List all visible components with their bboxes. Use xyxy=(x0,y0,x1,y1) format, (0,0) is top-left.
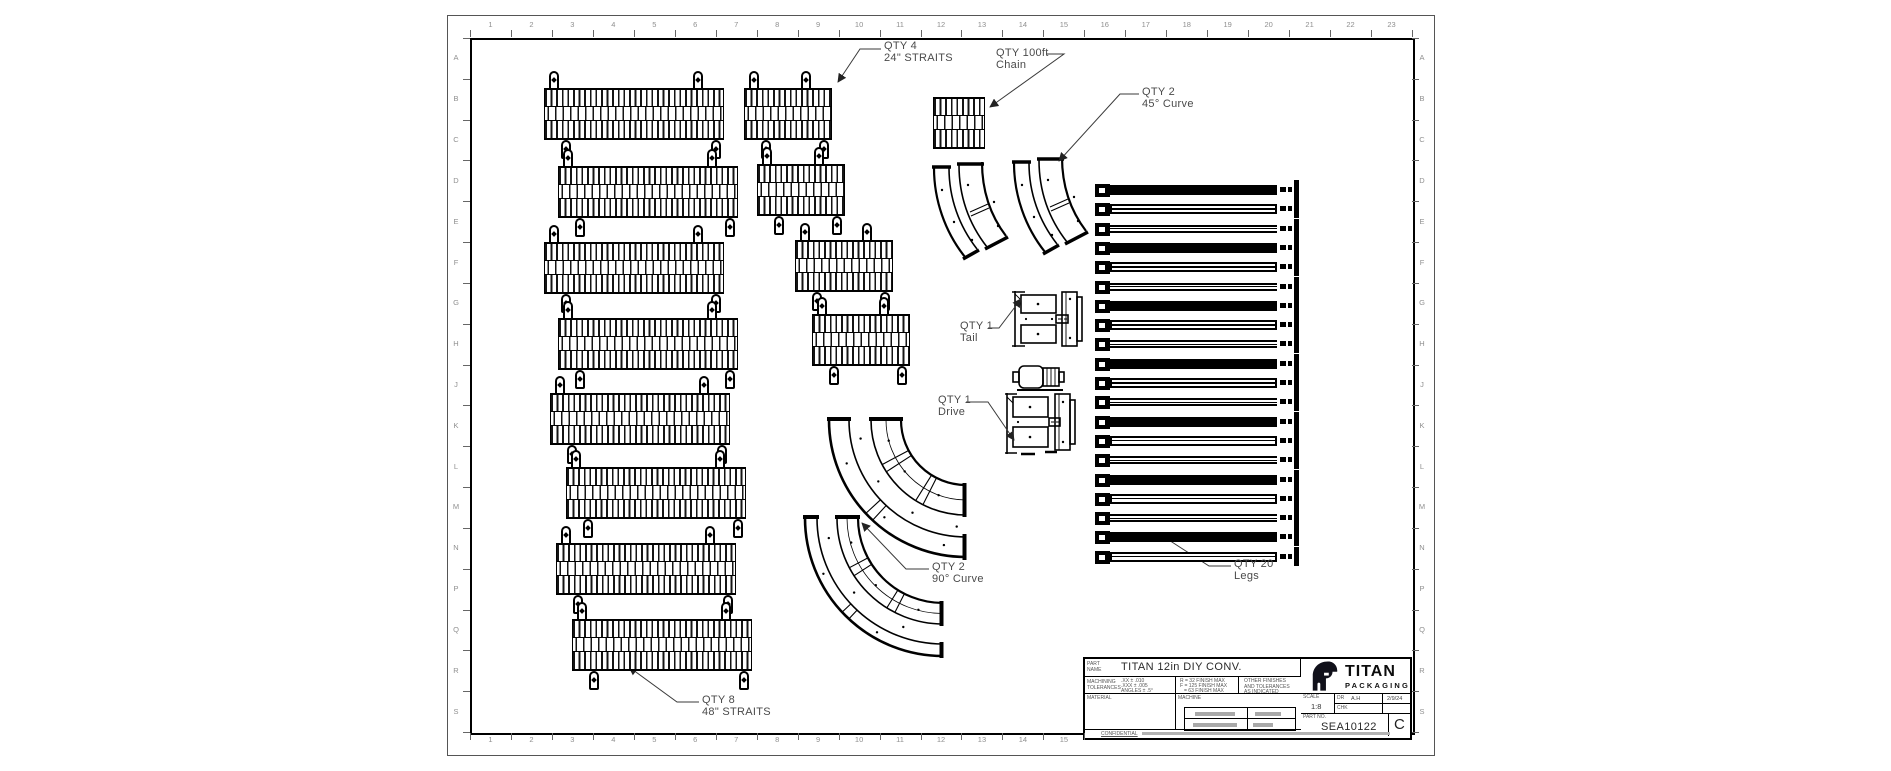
leg xyxy=(1095,392,1299,412)
material-cell: MATERIAL xyxy=(1085,694,1176,730)
leg-end-bracket xyxy=(1294,334,1299,353)
ruler-number: 13 xyxy=(962,21,1002,29)
leg-foot xyxy=(1095,281,1110,294)
leg-dash xyxy=(1280,419,1286,424)
leg-end-bracket xyxy=(1294,489,1299,508)
label-line1: QTY 1 xyxy=(960,321,993,333)
straight-48in xyxy=(550,393,730,445)
mount-lug xyxy=(721,602,731,621)
ruler-number: 5 xyxy=(634,21,674,29)
leg xyxy=(1095,219,1299,239)
ruler-number: 6 xyxy=(675,21,715,29)
leg-foot xyxy=(1095,454,1110,467)
leg-end-bracket xyxy=(1294,392,1299,411)
mount-lug xyxy=(814,147,824,166)
ruler-number: 12 xyxy=(921,736,961,744)
ruler-number: 3 xyxy=(552,21,592,29)
label-45-curve: QTY 245° Curve xyxy=(1142,87,1194,110)
ruler-letter: C xyxy=(1415,136,1429,144)
drawing-sheet: PART NAME TITAN 12in DIY CONV. MACHINING… xyxy=(0,0,1891,771)
leader-line xyxy=(862,523,929,569)
scale-label: SCALE xyxy=(1303,695,1319,701)
ruler-tick xyxy=(511,30,512,37)
leg-end-bracket xyxy=(1294,277,1299,296)
leader-line xyxy=(838,49,881,82)
mount-lug xyxy=(583,519,593,538)
ruler-number: 8 xyxy=(757,21,797,29)
leg-bar xyxy=(1110,359,1277,369)
leg xyxy=(1095,199,1299,219)
mount-lug xyxy=(879,297,889,316)
spartan-helmet-icon xyxy=(1309,661,1341,692)
leg-bar xyxy=(1110,320,1277,330)
ruler-tick xyxy=(463,569,470,570)
leg-bar xyxy=(1110,475,1277,485)
label-line1: QTY 4 xyxy=(884,41,953,53)
ruler-tick xyxy=(463,446,470,447)
mount-lug xyxy=(693,71,703,90)
ruler-tick xyxy=(798,733,799,740)
straight-48in xyxy=(544,242,724,294)
leg-bar xyxy=(1110,398,1277,406)
ruler-tick xyxy=(463,528,470,529)
ruler-number: 6 xyxy=(675,736,715,744)
straight-24in xyxy=(795,240,893,292)
label-line1: QTY 20 xyxy=(1234,559,1274,571)
ruler-letter: E xyxy=(449,218,463,226)
leg-dash xyxy=(1288,341,1292,346)
leg-bar xyxy=(1110,494,1277,504)
ruler-letter: F xyxy=(449,259,463,267)
ruler-tick xyxy=(1207,30,1208,37)
mount-lug xyxy=(762,147,772,166)
ruler-letter: H xyxy=(449,340,463,348)
ruler-tick xyxy=(1412,120,1419,121)
ruler-number: 14 xyxy=(1003,736,1043,744)
leg-end-bracket xyxy=(1294,199,1299,218)
chain-bed-band xyxy=(551,411,729,426)
label-line2: Tail xyxy=(960,333,993,345)
ruler-tick xyxy=(1248,30,1249,37)
straight-24in xyxy=(812,314,910,366)
label-line1: QTY 1 xyxy=(938,395,971,407)
ruler-number: 12 xyxy=(921,21,961,29)
leg xyxy=(1095,373,1299,393)
leg-dash xyxy=(1288,284,1292,289)
leg-dash xyxy=(1280,477,1286,482)
leg-foot xyxy=(1095,474,1110,487)
leg xyxy=(1095,489,1299,509)
ruler-letter: N xyxy=(449,544,463,552)
ruler-tick xyxy=(470,733,471,740)
mount-lug xyxy=(707,301,717,320)
mount-lug xyxy=(707,149,717,168)
ruler-letter: N xyxy=(1415,544,1429,552)
straight-48in xyxy=(572,619,752,671)
ruler-number: 8 xyxy=(757,736,797,744)
ruler-tick xyxy=(463,732,470,733)
leg xyxy=(1095,238,1299,258)
label-line2: 45° Curve xyxy=(1142,99,1194,111)
mount-lug xyxy=(725,370,735,389)
ruler-tick xyxy=(463,324,470,325)
ruler-number: 14 xyxy=(1003,21,1043,29)
ruler-letter: D xyxy=(1415,177,1429,185)
leg-foot xyxy=(1095,531,1110,544)
leg-bar xyxy=(1110,340,1277,348)
mount-lug xyxy=(549,225,559,244)
leg-foot xyxy=(1095,493,1110,506)
leg-bar xyxy=(1110,283,1277,291)
label-48in-straits: QTY 848" STRAITS xyxy=(702,695,771,718)
logo-cell: TITAN PACKAGING xyxy=(1301,659,1412,694)
ruler-tick xyxy=(1412,732,1419,733)
label-drive: QTY 1Drive xyxy=(938,395,971,418)
leg-dash xyxy=(1280,399,1286,404)
leg xyxy=(1095,257,1299,277)
mount-lug xyxy=(575,370,585,389)
ruler-tick xyxy=(463,283,470,284)
drawn-cell: DR A.H xyxy=(1335,694,1383,704)
mount-lug xyxy=(549,71,559,90)
ruler-number: 2 xyxy=(511,21,551,29)
label-tail: QTY 1Tail xyxy=(960,321,993,344)
leg-bar xyxy=(1110,301,1277,311)
ruler-letter: H xyxy=(1415,340,1429,348)
title-block: PART NAME TITAN 12in DIY CONV. MACHINING… xyxy=(1083,657,1412,740)
ruler-tick xyxy=(463,120,470,121)
leg-bar xyxy=(1110,514,1277,522)
mount-lug xyxy=(801,71,811,90)
signature-bar xyxy=(1142,732,1390,735)
leg xyxy=(1095,180,1299,200)
mount-lug xyxy=(733,519,743,538)
mount-lug xyxy=(699,376,709,395)
leg-foot xyxy=(1095,377,1110,390)
leg-dash xyxy=(1288,496,1292,501)
ruler-tick xyxy=(1412,79,1419,80)
chain-bed-band xyxy=(545,260,723,275)
ruler-number: 11 xyxy=(880,736,920,744)
ruler-tick xyxy=(1412,283,1419,284)
leg-bar xyxy=(1110,204,1277,214)
mount-lug xyxy=(832,216,842,235)
ruler-tick xyxy=(716,733,717,740)
label-line1: QTY 100ft xyxy=(996,48,1049,60)
ruler-tick xyxy=(716,30,717,37)
ruler-tick xyxy=(463,650,470,651)
ruler-tick xyxy=(1412,242,1419,243)
leg-dash xyxy=(1288,399,1292,404)
ruler-tick xyxy=(511,733,512,740)
label-line2: 24" STRAITS xyxy=(884,53,953,65)
ruler-tick xyxy=(552,30,553,37)
leg-end-bracket xyxy=(1294,257,1299,276)
ruler-number: 2 xyxy=(511,736,551,744)
ruler-tick xyxy=(1289,30,1290,37)
leg-dash xyxy=(1288,322,1292,327)
leg-dash xyxy=(1280,457,1286,462)
ruler-tick xyxy=(552,733,553,740)
ruler-letter: P xyxy=(449,585,463,593)
leg-dash xyxy=(1288,477,1292,482)
mount-lug xyxy=(774,216,784,235)
ruler-tick xyxy=(1412,30,1413,37)
leg-bar xyxy=(1110,225,1277,233)
ruler-letter: R xyxy=(1415,667,1429,675)
ruler-letter: C xyxy=(449,136,463,144)
label-90-curve: QTY 290° Curve xyxy=(932,562,984,585)
mount-lug xyxy=(575,218,585,237)
ruler-tick xyxy=(463,38,470,39)
leg xyxy=(1095,431,1299,451)
leg-dash xyxy=(1288,438,1292,443)
leg-bar xyxy=(1110,417,1277,427)
ruler-number: 4 xyxy=(593,21,633,29)
leg-dash xyxy=(1280,284,1286,289)
leg-end-bracket xyxy=(1294,373,1299,392)
leg-dash xyxy=(1280,361,1286,366)
ruler-tick xyxy=(961,30,962,37)
leg-dash xyxy=(1288,361,1292,366)
mount-lug xyxy=(715,450,725,469)
straight-48in xyxy=(544,88,724,140)
scale-value: 1:8 xyxy=(1311,702,1321,711)
chain-bed-band xyxy=(557,561,735,576)
ruler-tick xyxy=(463,610,470,611)
label-line1: QTY 8 xyxy=(702,695,771,707)
ruler-number: 9 xyxy=(798,736,838,744)
ruler-letter: J xyxy=(449,381,463,389)
ruler-tick xyxy=(839,733,840,740)
ruler-letter: G xyxy=(449,299,463,307)
title-block-name-cell: PART NAME TITAN 12in DIY CONV. xyxy=(1085,659,1301,677)
chain-bed-band xyxy=(559,184,737,199)
brand-sub: PACKAGING xyxy=(1345,682,1410,690)
curve-90-lower xyxy=(803,517,943,658)
ruler-letter: L xyxy=(1415,463,1429,471)
mount-lug xyxy=(577,602,587,621)
label-line1: QTY 2 xyxy=(1142,87,1194,99)
ruler-tick xyxy=(921,30,922,37)
leg-foot xyxy=(1095,435,1110,448)
finish-cell: R = 32 FINISH MAX F = 125 FINISH MAX = 6… xyxy=(1176,677,1239,694)
leg-foot xyxy=(1095,338,1110,351)
ruler-number: 15 xyxy=(1044,21,1084,29)
chain-bed-band xyxy=(567,485,745,500)
ruler-letter: M xyxy=(1415,503,1429,511)
ruler-number: 11 xyxy=(880,21,920,29)
straight-48in xyxy=(558,166,738,218)
ruler-letter: S xyxy=(449,708,463,716)
ruler-tick xyxy=(1412,38,1419,39)
leg-dash xyxy=(1280,341,1286,346)
ruler-tick xyxy=(1412,405,1419,406)
leg-bar xyxy=(1110,262,1277,272)
machine-cell: MACHINE xyxy=(1176,694,1301,730)
chain-bed-band xyxy=(813,332,909,347)
mount-lug xyxy=(589,671,599,690)
ruler-tick xyxy=(463,365,470,366)
ruler-tick xyxy=(1002,30,1003,37)
label-line2: 90° Curve xyxy=(932,574,984,586)
mount-lug xyxy=(725,218,735,237)
ruler-tick xyxy=(1002,733,1003,740)
leg-foot xyxy=(1095,358,1110,371)
ruler-tick xyxy=(1125,30,1126,37)
leg-bar xyxy=(1110,456,1277,464)
ruler-letter: B xyxy=(1415,95,1429,103)
leg-dash xyxy=(1280,534,1286,539)
ruler-tick xyxy=(839,30,840,37)
label-line2: Legs xyxy=(1234,571,1274,583)
ruler-tick xyxy=(675,733,676,740)
leg-dash xyxy=(1280,264,1286,269)
ruler-tick xyxy=(1084,30,1085,37)
ruler-letter: M xyxy=(449,503,463,511)
leg-end-bracket xyxy=(1294,219,1299,238)
ruler-tick xyxy=(1412,487,1419,488)
leg-bar xyxy=(1110,185,1277,195)
curve-45-left xyxy=(932,162,1008,259)
leg-end-bracket xyxy=(1294,238,1299,257)
leg-foot xyxy=(1095,223,1110,236)
ruler-tick xyxy=(463,405,470,406)
leg-end-bracket xyxy=(1294,470,1299,489)
ruler-number: 16 xyxy=(1085,21,1125,29)
date-value: 2/9/24 xyxy=(1387,696,1402,702)
leg xyxy=(1095,334,1299,354)
ruler-tick xyxy=(1043,733,1044,740)
leg-dash xyxy=(1288,187,1292,192)
leg-dash xyxy=(1288,303,1292,308)
leg-foot xyxy=(1095,396,1110,409)
drawn-value: A.H xyxy=(1351,696,1360,702)
straight-48in xyxy=(556,543,736,595)
ruler-letter: P xyxy=(1415,585,1429,593)
leg-end-bracket xyxy=(1294,180,1299,199)
leg-dash xyxy=(1288,245,1292,250)
leader-line xyxy=(629,667,699,702)
ruler-letter: S xyxy=(1415,708,1429,716)
leg-dash xyxy=(1288,554,1292,559)
leg-foot xyxy=(1095,184,1110,197)
label-legs: QTY 20Legs xyxy=(1234,559,1274,582)
check-date-cell xyxy=(1383,704,1412,714)
ruler-letter: G xyxy=(1415,299,1429,307)
curve-45-right xyxy=(1012,157,1088,254)
leg-dash xyxy=(1280,322,1286,327)
ruler-letter: A xyxy=(1415,54,1429,62)
leg-dash xyxy=(1288,534,1292,539)
ruler-tick xyxy=(634,30,635,37)
chain-bed-band xyxy=(745,106,831,121)
tolerance-cell: MACHINING TOLERANCES .XX ± .010 .XXX ± .… xyxy=(1085,677,1176,694)
ruler-number: 13 xyxy=(962,736,1002,744)
leg-end-bracket xyxy=(1294,508,1299,527)
drawn-label: DR xyxy=(1337,696,1344,702)
ruler-number: 19 xyxy=(1208,21,1248,29)
leg xyxy=(1095,450,1299,470)
chain-bundle xyxy=(933,97,985,149)
ruler-number: 3 xyxy=(552,736,592,744)
leg-foot xyxy=(1095,551,1110,564)
leg-bar xyxy=(1110,532,1277,542)
leg xyxy=(1095,354,1299,374)
mount-lug xyxy=(817,297,827,316)
label-chain: QTY 100ftChain xyxy=(996,48,1049,71)
ruler-letter: Q xyxy=(449,626,463,634)
leg-dash xyxy=(1288,419,1292,424)
mount-lug xyxy=(563,301,573,320)
ruler-tick xyxy=(1371,30,1372,37)
ruler-tick xyxy=(880,733,881,740)
ruler-tick xyxy=(463,242,470,243)
leg-dash xyxy=(1280,554,1286,559)
leg-end-bracket xyxy=(1294,431,1299,450)
leg-bar xyxy=(1110,243,1277,253)
ruler-tick xyxy=(1412,691,1419,692)
part-no-label: PART NO. xyxy=(1303,715,1326,721)
ruler-tick xyxy=(1412,201,1419,202)
leg-bar xyxy=(1110,378,1277,388)
leg-dash xyxy=(1288,515,1292,520)
ruler-number: 22 xyxy=(1331,21,1371,29)
ruler-letter: L xyxy=(449,463,463,471)
ruler-tick xyxy=(593,733,594,740)
leg xyxy=(1095,296,1299,316)
leg-foot xyxy=(1095,242,1110,255)
leg-dash xyxy=(1288,226,1292,231)
leg-dash xyxy=(1280,206,1286,211)
straight-48in xyxy=(558,318,738,370)
leg-foot xyxy=(1095,203,1110,216)
ruler-tick xyxy=(757,733,758,740)
ruler-number: 7 xyxy=(716,736,756,744)
ruler-tick xyxy=(463,487,470,488)
ruler-number: 1 xyxy=(470,21,510,29)
machine-subtable xyxy=(1184,707,1296,731)
leg-dash xyxy=(1280,226,1286,231)
leg xyxy=(1095,470,1299,490)
ruler-tick xyxy=(1084,733,1085,740)
ruler-number: 1 xyxy=(470,736,510,744)
straight-24in xyxy=(744,88,832,140)
chain-bed-band xyxy=(758,182,844,197)
ruler-letter: Q xyxy=(1415,626,1429,634)
leg-foot xyxy=(1095,512,1110,525)
ruler-letter: A xyxy=(449,54,463,62)
check-label: CHK xyxy=(1337,706,1348,712)
ruler-number: 18 xyxy=(1167,21,1207,29)
part-name: TITAN 12in DIY CONV. xyxy=(1121,661,1242,673)
straight-24in xyxy=(757,164,845,216)
leg-foot xyxy=(1095,416,1110,429)
leg xyxy=(1095,277,1299,297)
ruler-number: 7 xyxy=(716,21,756,29)
mount-lug xyxy=(571,450,581,469)
leg-foot xyxy=(1095,319,1110,332)
label-line2: Drive xyxy=(938,407,971,419)
ruler-tick xyxy=(1412,365,1419,366)
other-finish-cell: OTHER FINISHES AND TOLERANCES AS INDICAT… xyxy=(1239,677,1301,694)
straight-48in xyxy=(566,467,746,519)
material-label: MATERIAL xyxy=(1087,696,1112,702)
leg-end-bracket xyxy=(1294,527,1299,546)
ruler-number: 5 xyxy=(634,736,674,744)
leader-line xyxy=(1059,94,1139,161)
check-cell: CHK xyxy=(1335,704,1383,714)
